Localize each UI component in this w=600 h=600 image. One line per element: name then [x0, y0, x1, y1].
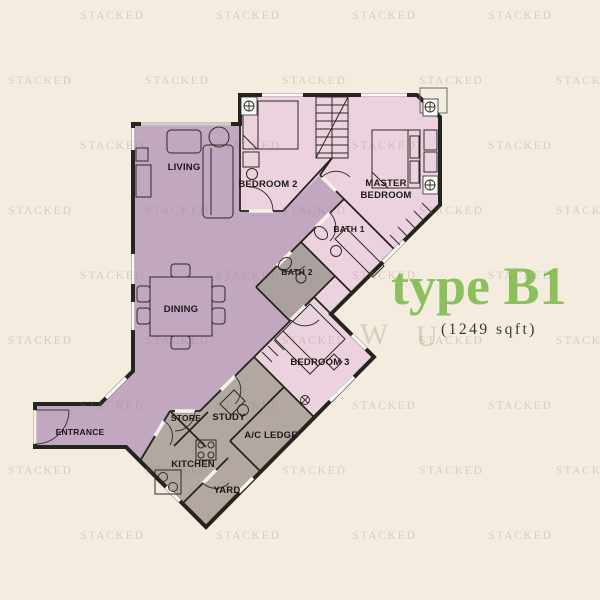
room-label-yard: YARD [214, 485, 241, 496]
room-fills [35, 95, 440, 527]
unit-type-title: type B1 (1249 sqft) [391, 256, 567, 338]
room-label-bath2: BATH 2 [281, 267, 312, 277]
unit-area-text: (1249 sqft) [441, 321, 537, 338]
room-label-acledge: A/C LEDGE [244, 430, 298, 441]
floor-plan-svg: LIVING DINING BEDROOM 2 MASTER BEDROOM B… [0, 0, 600, 600]
room-label-dining: DINING [164, 304, 198, 315]
floor-plan-page: LIVING DINING BEDROOM 2 MASTER BEDROOM B… [0, 0, 600, 600]
room-label-living: LIVING [168, 162, 201, 173]
room-label-bedroom3: BEDROOM 3 [290, 357, 349, 368]
room-label-bedroom2: BEDROOM 2 [238, 179, 297, 190]
room-label-master-2: BEDROOM [360, 190, 411, 201]
unit-type-text: type B1 [391, 256, 567, 316]
room-label-study: STUDY [212, 412, 246, 423]
room-label-bath1: BATH 1 [333, 224, 364, 234]
room-label-kitchen: KITCHEN [171, 459, 215, 470]
room-label-store: STORE [171, 413, 201, 423]
room-label-entrance: ENTRANCE [56, 427, 105, 437]
room-label-master-1: MASTER [365, 178, 406, 189]
